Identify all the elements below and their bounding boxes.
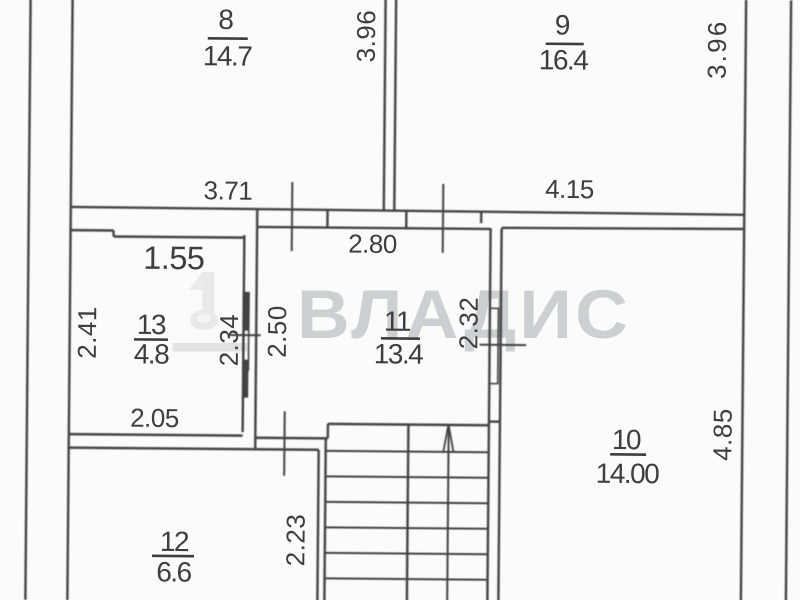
svg-text:9: 9 [555,9,570,40]
svg-text:2.05: 2.05 [130,403,179,433]
svg-text:2.32: 2.32 [453,297,483,350]
svg-text:3.96: 3.96 [351,10,381,63]
svg-text:2.50: 2.50 [262,305,292,358]
svg-text:13: 13 [137,309,166,340]
svg-text:10: 10 [612,424,641,455]
svg-text:11: 11 [384,306,411,337]
svg-text:2.34: 2.34 [214,314,244,367]
svg-text:14.7: 14.7 [203,40,253,71]
svg-text:16.4: 16.4 [539,44,589,75]
svg-text:14.00: 14.00 [596,458,660,490]
svg-text:6.6: 6.6 [156,556,192,587]
svg-text:4.8: 4.8 [134,338,170,369]
svg-text:4.85: 4.85 [707,408,737,461]
svg-text:4.15: 4.15 [545,174,594,204]
svg-text:2.23: 2.23 [280,514,310,567]
svg-text:12: 12 [160,526,189,557]
svg-text:13.4: 13.4 [374,338,424,369]
svg-text:1.55: 1.55 [143,240,205,277]
svg-text:2.41: 2.41 [72,306,102,359]
svg-text:3.96: 3.96 [702,19,733,79]
svg-text:2.80: 2.80 [348,229,397,259]
svg-text:8: 8 [218,4,233,35]
svg-text:3.71: 3.71 [204,175,253,205]
